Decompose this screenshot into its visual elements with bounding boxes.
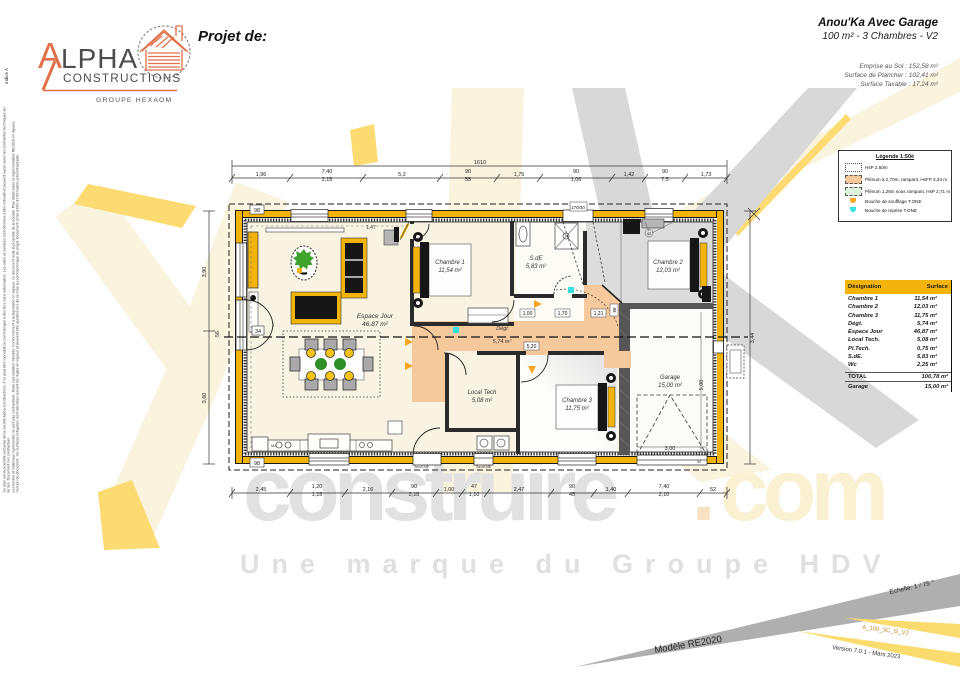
- svg-text:1610: 1610: [474, 160, 486, 166]
- svg-text:7,40: 7,40: [659, 484, 670, 490]
- svg-text:54: 54: [697, 460, 701, 464]
- svg-text:1,42: 1,42: [624, 172, 635, 178]
- svg-text:1,00: 1,00: [444, 487, 455, 493]
- svg-text:98: 98: [254, 208, 260, 214]
- svg-text:11,54 m²: 11,54 m²: [438, 268, 462, 274]
- svg-text:2,15: 2,15: [322, 177, 333, 183]
- svg-text:45: 45: [569, 492, 575, 498]
- svg-text:Chambre 3: Chambre 3: [562, 398, 592, 404]
- svg-text:1,06: 1,06: [571, 177, 582, 183]
- svg-text:46,87 m²: 46,87 m²: [362, 321, 388, 328]
- svg-text:90: 90: [573, 169, 579, 175]
- svg-text:Seuil ME: Seuil ME: [476, 465, 492, 469]
- svg-text:1,15: 1,15: [312, 492, 323, 498]
- svg-text:3,90: 3,90: [202, 267, 208, 278]
- svg-text:3,44: 3,44: [750, 333, 756, 344]
- svg-text:Chambre 2: Chambre 2: [653, 260, 683, 266]
- svg-text:Espace Jour: Espace Jour: [357, 313, 394, 320]
- svg-text:Dégt: Dégt: [496, 326, 508, 332]
- svg-text:Chambre 1: Chambre 1: [435, 260, 465, 266]
- svg-text:90: 90: [662, 169, 668, 175]
- svg-text:170/30: 170/30: [571, 205, 585, 210]
- svg-text:52: 52: [710, 487, 716, 493]
- svg-text:1,73: 1,73: [701, 172, 712, 178]
- svg-text:1,10: 1,10: [469, 492, 480, 498]
- svg-text:1,21: 1,21: [594, 311, 604, 317]
- svg-text:1,75: 1,75: [514, 172, 525, 178]
- svg-text:Modèle RE2020: Modèle RE2020: [654, 634, 723, 656]
- svg-text:2,10: 2,10: [659, 492, 670, 498]
- svg-text:90: 90: [411, 484, 417, 490]
- svg-text:88: 88: [612, 307, 617, 313]
- svg-text:2,45: 2,45: [256, 487, 267, 493]
- svg-text:12,03 m²: 12,03 m²: [656, 268, 681, 274]
- svg-text:1,20: 1,20: [312, 484, 323, 490]
- svg-text:34: 34: [255, 329, 261, 335]
- svg-text:11,75 m²: 11,75 m²: [565, 406, 589, 412]
- svg-text:2,16: 2,16: [363, 487, 374, 493]
- svg-text:Seuil ME: Seuil ME: [414, 465, 430, 469]
- svg-text:90: 90: [569, 484, 575, 490]
- svg-text:1,40: 1,40: [606, 487, 617, 493]
- svg-text:1,47: 1,47: [366, 225, 376, 231]
- svg-text:15,00 m²: 15,00 m²: [658, 383, 683, 389]
- svg-text:90: 90: [465, 169, 471, 175]
- svg-text:Garage: Garage: [660, 375, 681, 381]
- svg-text:7,5: 7,5: [661, 177, 669, 183]
- svg-text:MA: MA: [271, 443, 277, 448]
- svg-text:5,2: 5,2: [398, 172, 406, 178]
- svg-text:3,00: 3,00: [665, 446, 676, 452]
- svg-text:7,40: 7,40: [322, 169, 333, 175]
- svg-text:2,47: 2,47: [514, 487, 525, 493]
- svg-text:5,74 m²: 5,74 m²: [493, 339, 512, 345]
- svg-text:Local Tech: Local Tech: [468, 390, 497, 396]
- svg-text:5,00: 5,00: [699, 380, 705, 391]
- svg-text:55: 55: [465, 177, 471, 183]
- svg-text:3,60: 3,60: [202, 393, 208, 404]
- svg-text:1,96: 1,96: [256, 172, 267, 178]
- svg-text:S.dE: S.dE: [529, 256, 543, 262]
- svg-text:47: 47: [471, 484, 477, 490]
- svg-text:1,70: 1,70: [558, 311, 568, 317]
- svg-text:5,83 m²: 5,83 m²: [526, 264, 547, 270]
- svg-text:1,00: 1,00: [523, 311, 533, 317]
- svg-text:5,08 m²: 5,08 m²: [472, 398, 493, 404]
- svg-text:2,15: 2,15: [409, 492, 420, 498]
- svg-text:42: 42: [647, 231, 652, 236]
- svg-text:56: 56: [215, 331, 221, 337]
- svg-text:5,20: 5,20: [527, 344, 537, 350]
- svg-text:98: 98: [254, 461, 260, 467]
